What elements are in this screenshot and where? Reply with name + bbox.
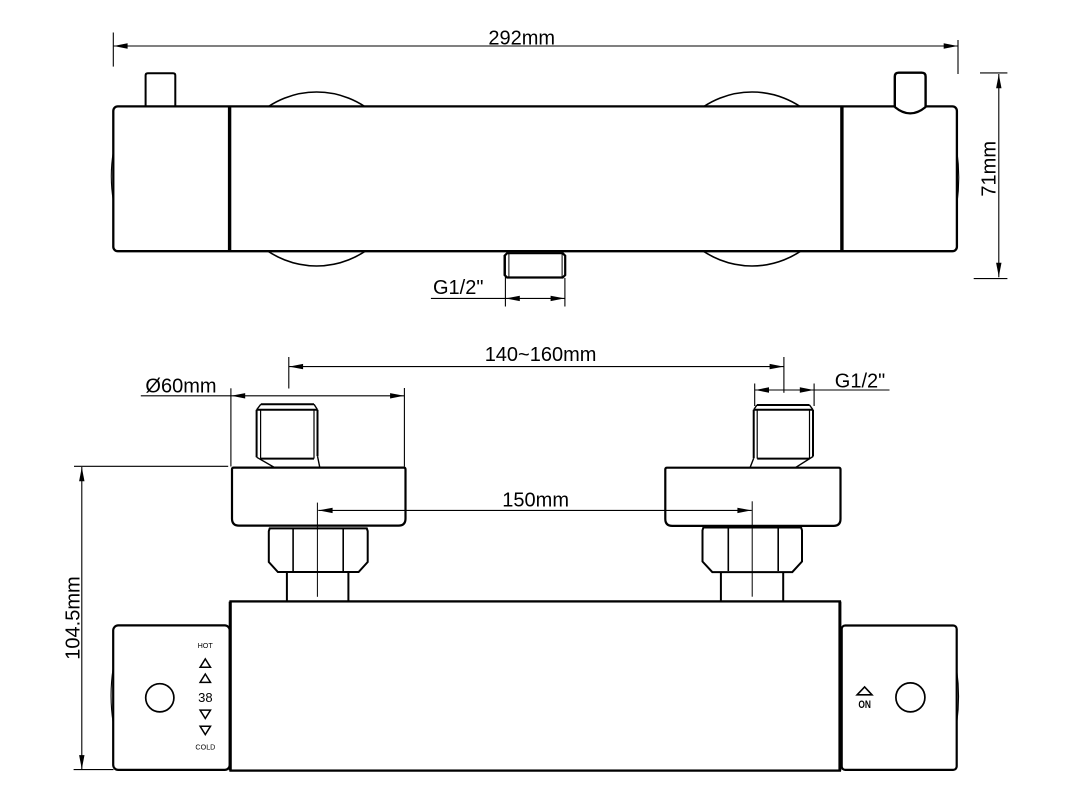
svg-text:G1/2": G1/2"	[433, 277, 483, 299]
svg-text:ON: ON	[858, 699, 871, 711]
svg-text:38: 38	[198, 690, 212, 705]
svg-text:COLD: COLD	[195, 742, 215, 751]
svg-text:104.5mm: 104.5mm	[62, 576, 84, 659]
svg-text:150mm: 150mm	[502, 490, 569, 512]
svg-text:71mm: 71mm	[979, 141, 1001, 197]
svg-text:Ø60mm: Ø60mm	[145, 375, 216, 397]
svg-text:G1/2": G1/2"	[835, 371, 885, 393]
svg-text:292mm: 292mm	[488, 27, 555, 49]
svg-text:140~160mm: 140~160mm	[485, 344, 597, 366]
svg-text:HOT: HOT	[198, 641, 214, 650]
